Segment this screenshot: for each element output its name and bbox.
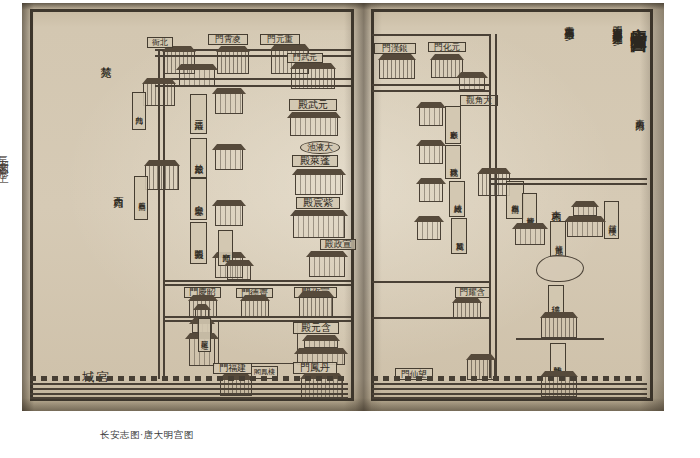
palace-wall-a	[163, 280, 351, 282]
label-chongyuan-gate: 門元重	[260, 34, 300, 45]
south-wall-left	[30, 383, 348, 385]
longwei-ramp-court	[218, 320, 298, 364]
building-east-1	[416, 102, 446, 126]
moat-line-left	[30, 393, 348, 395]
east-wall-2	[495, 34, 497, 378]
label-yuanwu-gate: 門武元	[287, 53, 323, 63]
label-yuanwu-hall: 殿武元	[289, 99, 337, 111]
label-longshou-pool: 龍首池	[550, 221, 566, 257]
gate-tower-qide	[240, 295, 270, 317]
gate-tower-qiuchang	[540, 312, 578, 338]
building-penglai	[292, 169, 346, 195]
label-dajiao-abbey: 觀角大	[460, 95, 498, 106]
label-yuanhua-gate: 門化元	[428, 42, 466, 52]
label-penglai-hall: 殿萊蓬	[292, 155, 338, 167]
gate-tower-yuanwu	[290, 63, 336, 89]
building-east-2	[416, 140, 446, 164]
label-jianfu-gate: 門福建	[213, 363, 252, 374]
qiuchang-platform	[516, 338, 604, 340]
building-hanyuan	[294, 335, 348, 365]
moat-line-right	[372, 393, 647, 395]
building-longshou	[512, 223, 548, 245]
building-xuanzheng-hall	[306, 251, 348, 277]
map-title: 唐大明宮圖	[626, 15, 650, 119]
label-jinluan-hall: 金鑾殿	[190, 178, 207, 220]
label-hanyuan-hall: 殿元含	[293, 322, 339, 334]
building-yuanwu-hall	[287, 112, 341, 136]
building-chenhui	[564, 201, 606, 237]
building-zichen	[290, 210, 348, 238]
label-youyintai-gate: 右銀臺門	[134, 176, 148, 220]
label-lingxiao-gate: 門霄凌	[208, 34, 248, 45]
gate-tower-youyintai	[144, 160, 180, 190]
north-wall-right-3	[372, 90, 490, 92]
label-taiye-pool: 池液大	[300, 141, 340, 154]
map-subtitle: 東內苑附	[632, 112, 646, 160]
south-wall-crenellation-left	[30, 376, 348, 381]
building-northeast	[456, 72, 488, 90]
south-wall-right	[372, 383, 647, 385]
caption: 长安志图·唐大明宫图	[100, 429, 194, 442]
dongneiyuan-wall-2	[489, 183, 647, 185]
scanned-map-page: 衙北 門霄凌 門元重 門武元 禁苑 西內苑 城宮 九仙門 右銀臺門 三清殿 拾翠…	[0, 0, 700, 458]
north-wall-right	[372, 34, 490, 36]
label-jiuxian-gate: 九仙門	[132, 92, 146, 130]
map-note-dimensions: 大明宮城廣二里百四十八步縱四里九十五步	[578, 18, 625, 110]
palace-wall-a2	[163, 284, 351, 286]
area-xineiyuan: 西內苑	[110, 168, 126, 210]
south-wall-right-2	[372, 388, 647, 390]
label-yanying-hall: 延英殿	[451, 218, 467, 254]
area-jinyuan: 禁苑	[97, 36, 114, 80]
building-jinluan	[212, 200, 246, 226]
gate-tower-lingxiao	[216, 46, 250, 74]
gate-tower-xuanzheng	[298, 291, 334, 317]
building-north-west	[176, 64, 218, 86]
label-lingqi-hall: 綾綺殿	[449, 181, 465, 217]
label-mingyi-hall: 明義殿	[190, 222, 207, 264]
label-longwei-ramp: 龍尾道	[198, 318, 211, 352]
label-zhujing-hall: 珠鏡殿	[445, 145, 461, 179]
gate-tower-jiuxian	[142, 78, 176, 106]
building-guangshun-gate	[224, 260, 254, 280]
building-sanqing	[212, 88, 246, 114]
label-yinhan-gate: 門漢銀	[374, 43, 416, 54]
building-east-3	[416, 178, 446, 202]
area-dongneiyuan: 東內苑	[548, 184, 564, 222]
south-wall-crenellation-right	[372, 376, 647, 381]
moat-line-left-2	[30, 397, 348, 399]
label-shicui-hall: 拾翠殿	[190, 138, 207, 178]
building-east-4	[414, 216, 444, 240]
moat-line-right-2	[372, 397, 647, 399]
spine-text: 長安志圖卷上	[0, 146, 11, 306]
label-zichen-hall: 殿宸紫	[296, 197, 340, 209]
label-xuanzheng-hall: 殿政宣	[320, 239, 356, 250]
dongneiyuan-wall	[489, 178, 647, 180]
gate-tower-east-axis	[452, 297, 482, 318]
label-beiya: 衙北	[147, 37, 173, 48]
palace-wall-a-right	[372, 281, 489, 283]
gate-tower-yinhan	[378, 54, 416, 79]
label-qiuchang: 毬場	[548, 285, 564, 313]
label-chenhui-tower: 晨暉樓	[604, 201, 619, 239]
label-hanying-hall: 寒影殿	[445, 106, 461, 144]
building-shicui	[212, 144, 246, 170]
east-wall	[489, 34, 491, 378]
map-note-garden: 東內苑廣二百五十步	[545, 18, 577, 110]
south-wall-left-2	[30, 388, 348, 390]
label-sanqing-hall: 三清殿	[190, 94, 207, 134]
